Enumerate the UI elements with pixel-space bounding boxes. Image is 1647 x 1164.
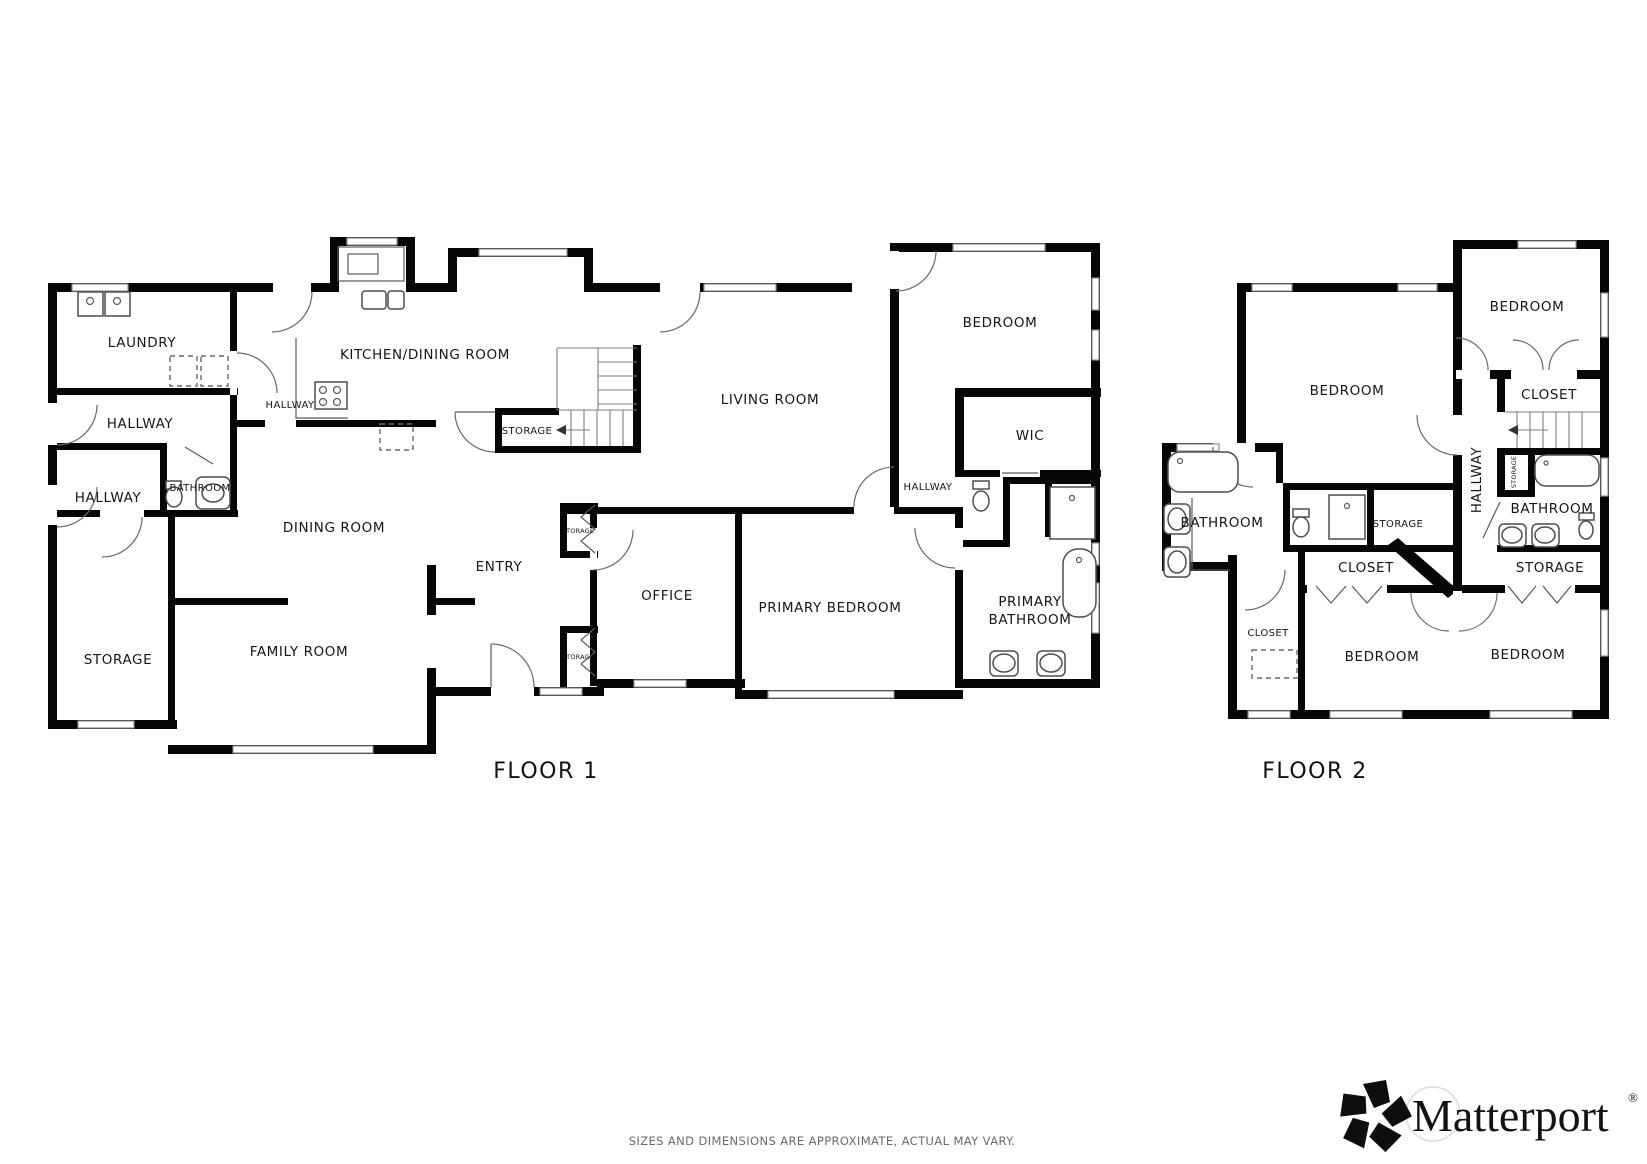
matterport-wordmark: Matterport (1412, 1090, 1609, 1141)
bathtub-icon (1168, 452, 1238, 492)
room-label-primary-bedroom: PRIMARY BEDROOM (759, 600, 902, 616)
room-label-storage-stairs: STORAGE (502, 426, 552, 437)
shower-icon (1329, 495, 1365, 539)
room-label-living-room: LIVING ROOM (721, 392, 819, 408)
room-label-bedroom: BEDROOM (963, 315, 1038, 331)
floor1-title: FLOOR 1 (493, 759, 599, 784)
room-label-storage-hall: STORAGE (1510, 456, 1518, 488)
floor1-stairs (556, 348, 637, 446)
room-label-laundry: LAUNDRY (108, 335, 177, 351)
room-label-bedroom-left: BEDROOM (1310, 383, 1385, 399)
room-label-storage-closet-top: STORAGE (562, 527, 594, 535)
matterport-logo: Matterport ® (1336, 1080, 1638, 1155)
floor2-title: FLOOR 2 (1262, 759, 1368, 784)
room-label-hallway-top: HALLWAY (107, 416, 174, 432)
room-label-bedroom-bottom-middle: BEDROOM (1345, 649, 1420, 665)
registered-trademark-symbol: ® (1628, 1090, 1638, 1105)
stove-icon (315, 382, 347, 409)
room-label-closet-top-right: CLOSET (1521, 387, 1577, 403)
room-label-hallway: HALLWAY (1469, 447, 1485, 514)
room-label-bedroom-top-right: BEDROOM (1490, 299, 1565, 315)
room-label-hallway-left: HALLWAY (75, 490, 142, 506)
kitchen-sink-icon (362, 291, 386, 309)
room-label-storage-right: STORAGE (1516, 560, 1584, 576)
room-label-bedroom-bottom-right: BEDROOM (1491, 647, 1566, 663)
room-label-bathroom-left: BATHROOM (1181, 515, 1264, 531)
toilet-icon (973, 481, 989, 489)
room-label-wic: WIC (1016, 428, 1045, 444)
room-label-entry: ENTRY (476, 559, 523, 575)
room-label-primary-bathroom-1: PRIMARY (998, 594, 1062, 610)
room-label-storage-closet-bottom: STORAGE (562, 653, 594, 661)
room-label-hallway-kitchen: HALLWAY (266, 400, 315, 411)
room-label-primary-bathroom-2: BATHROOM (989, 612, 1072, 628)
room-label-bathroom: BATHROOM (169, 483, 230, 494)
toilet-icon (1293, 509, 1309, 517)
room-label-office: OFFICE (641, 588, 693, 604)
disclaimer-text: SIZES AND DIMENSIONS ARE APPROXIMATE, AC… (629, 1134, 1016, 1148)
room-label-hallway-suite: HALLWAY (904, 482, 953, 493)
bathtub-icon (1063, 549, 1096, 617)
room-label-kitchen-dining: KITCHEN/DINING ROOM (340, 347, 510, 363)
room-label-dining-room: DINING ROOM (283, 520, 385, 536)
room-label-family-room: FAMILY ROOM (250, 644, 349, 660)
floor1-labels: LAUNDRY HALLWAY HALLWAY BATHROOM STORAGE… (75, 315, 1072, 784)
floorplan-page: LAUNDRY HALLWAY HALLWAY BATHROOM STORAGE… (0, 0, 1647, 1164)
shower-icon (1050, 487, 1095, 539)
room-label-bathroom-right: BATHROOM (1511, 501, 1594, 517)
room-label-storage-middle: STORAGE (1373, 519, 1423, 530)
bathtub-icon (1535, 455, 1599, 486)
room-label-storage: STORAGE (84, 652, 152, 668)
room-label-closet-middle: CLOSET (1338, 560, 1394, 576)
floor2-stairs (1505, 412, 1600, 448)
floorplan-image: LAUNDRY HALLWAY HALLWAY BATHROOM STORAGE… (0, 0, 1647, 1164)
matterport-pinwheel-icon (1336, 1080, 1413, 1155)
footer: SIZES AND DIMENSIONS ARE APPROXIMATE, AC… (629, 1080, 1638, 1155)
room-label-closet-left: CLOSET (1247, 628, 1289, 639)
